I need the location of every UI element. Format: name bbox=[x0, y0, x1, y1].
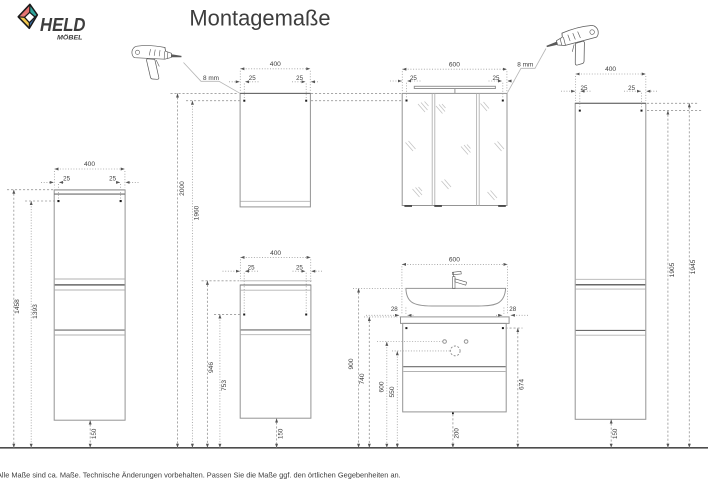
svg-text:25: 25 bbox=[296, 75, 303, 82]
svg-text:674: 674 bbox=[519, 379, 526, 390]
svg-text:200: 200 bbox=[454, 428, 461, 439]
svg-text:HELD: HELD bbox=[40, 14, 86, 35]
svg-text:900: 900 bbox=[348, 358, 355, 369]
svg-text:MÖBEL: MÖBEL bbox=[57, 32, 83, 41]
svg-text:400: 400 bbox=[270, 250, 281, 257]
svg-text:1960: 1960 bbox=[194, 205, 201, 220]
svg-text:1945: 1945 bbox=[690, 259, 697, 274]
svg-text:400: 400 bbox=[270, 61, 281, 68]
svg-text:150: 150 bbox=[278, 428, 285, 439]
svg-text:2000: 2000 bbox=[179, 181, 186, 196]
svg-text:400: 400 bbox=[605, 66, 616, 73]
svg-text:28: 28 bbox=[391, 306, 398, 313]
svg-text:1905: 1905 bbox=[669, 262, 676, 277]
svg-text:150: 150 bbox=[612, 428, 619, 439]
svg-text:25: 25 bbox=[248, 264, 255, 271]
svg-text:150: 150 bbox=[91, 428, 98, 439]
svg-text:1458: 1458 bbox=[14, 299, 21, 314]
svg-text:8 mm: 8 mm bbox=[203, 75, 219, 82]
svg-text:25: 25 bbox=[628, 85, 635, 92]
svg-text:1393: 1393 bbox=[32, 304, 39, 319]
svg-text:25: 25 bbox=[410, 75, 417, 82]
svg-text:600: 600 bbox=[449, 61, 460, 68]
svg-text:25: 25 bbox=[249, 75, 256, 82]
svg-text:25: 25 bbox=[296, 264, 303, 271]
svg-text:600: 600 bbox=[379, 381, 386, 392]
svg-text:946: 946 bbox=[208, 362, 215, 373]
svg-text:600: 600 bbox=[449, 257, 460, 264]
svg-text:550: 550 bbox=[389, 386, 396, 397]
svg-text:28: 28 bbox=[509, 306, 516, 313]
svg-text:25: 25 bbox=[109, 175, 116, 182]
svg-text:753: 753 bbox=[221, 380, 228, 391]
svg-text:Alle Maße sind ca. Maße. Techn: Alle Maße sind ca. Maße. Technische Ände… bbox=[0, 470, 401, 479]
svg-text:25: 25 bbox=[493, 75, 500, 82]
svg-text:400: 400 bbox=[84, 161, 95, 168]
svg-text:740: 740 bbox=[359, 373, 366, 384]
svg-text:8 mm: 8 mm bbox=[517, 61, 533, 68]
svg-text:Montagemaße: Montagemaße bbox=[189, 6, 330, 31]
svg-text:25: 25 bbox=[63, 175, 70, 182]
